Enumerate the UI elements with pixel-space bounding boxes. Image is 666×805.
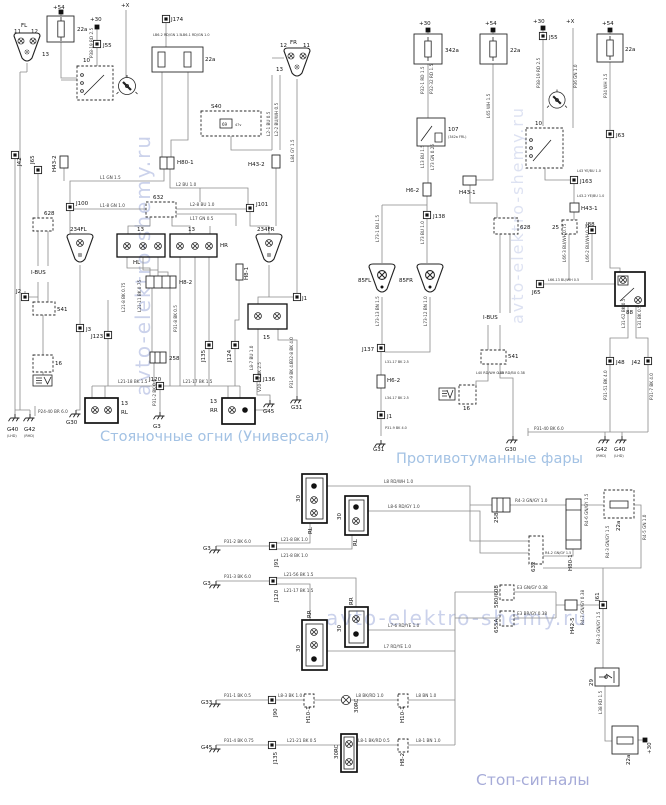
power-54-terminal: [491, 28, 496, 33]
connector-j138: [423, 211, 430, 218]
label: +X: [121, 3, 130, 9]
label: 13: [137, 227, 144, 233]
wire-label: L7-6 RD/YE 1.0: [388, 623, 420, 628]
label: J48: [615, 360, 625, 366]
fuse-22a-dashed: [604, 490, 634, 518]
label: H43-1: [459, 190, 476, 196]
label: G45: [263, 409, 275, 415]
label: 11: [303, 43, 310, 49]
wire-label: E3 GN/GY 0.38: [517, 585, 548, 590]
label: G45: [201, 745, 213, 751]
label: +30: [533, 19, 545, 25]
connector-j91: [269, 542, 276, 549]
label: 22a: [625, 47, 635, 53]
power-30-terminal: [541, 26, 546, 31]
wire-label: L17 GN 0.5: [190, 216, 214, 221]
wire-label: P31-3 BK 6.0: [224, 574, 251, 579]
wire-label: L7 RD/YE 1.0: [384, 644, 411, 649]
power-30-terminal: [643, 738, 648, 743]
lamp-30rc-bulb: [341, 695, 350, 704]
label: 107: [448, 127, 459, 133]
lamp-85fr: [417, 264, 443, 292]
connector-j120: [156, 382, 163, 389]
lamp-fr: [284, 48, 310, 76]
label: 85FR: [399, 278, 413, 284]
label: J136: [262, 377, 276, 383]
wire-label: P38-19 RD 2.5: [89, 28, 94, 58]
label: J138: [432, 214, 446, 220]
fuse-342a: [414, 34, 442, 64]
label: RL: [353, 538, 359, 546]
label: H42-5: [570, 617, 576, 634]
ground-g45: [264, 400, 275, 407]
label: J1: [301, 296, 307, 302]
label: +54: [485, 21, 497, 27]
label: RR: [349, 597, 355, 605]
unit-s40: [201, 111, 261, 136]
wire-label: P31-4 BK 0.75: [224, 738, 254, 743]
label: G31: [291, 405, 302, 411]
wire-label: L21-21 BK 0.5: [287, 738, 317, 743]
section-title-parking: Стояночные огни (Универсал): [100, 429, 329, 445]
ground-g42: [599, 436, 610, 443]
label: J163: [579, 179, 593, 185]
label: H6-2: [387, 378, 400, 384]
wire-label: L2 BU 1.0: [176, 182, 197, 187]
wire-label: R4-2 GN/GY 1.5: [545, 551, 571, 555]
connector-h80-1: [160, 157, 174, 169]
unit-15: [248, 304, 287, 329]
label: 13: [210, 399, 217, 405]
label: 541: [508, 354, 519, 360]
wire-label: P32-1 RD 1.5: [420, 66, 425, 94]
connector-j42: [644, 357, 651, 364]
wire-label: L21-8 BK 1.0: [281, 553, 308, 558]
unit-13-rr: [222, 398, 255, 424]
label: 16: [463, 406, 470, 412]
label: I-BUS: [483, 315, 498, 321]
wire-label: L2-1 BU 0.5: [266, 111, 271, 136]
label: 13: [42, 52, 49, 58]
label: G42: [596, 447, 607, 453]
battery-gauge-icon: [33, 375, 52, 386]
connector-j174: [162, 15, 169, 22]
connector-j90: [268, 696, 275, 703]
unit-13-hr: [170, 234, 217, 257]
wire-label: L1-8 GN 1.0: [100, 203, 125, 208]
connector-j63: [606, 130, 613, 137]
lamp-234fr: [256, 234, 282, 262]
connector-h10-1-b: [398, 694, 408, 707]
wire-label: L2-2 BU/WH 0.5: [274, 103, 279, 136]
connector-j101: [246, 204, 253, 211]
label: J65: [30, 155, 36, 165]
wire-label: P38-19 RD 2.5: [536, 58, 541, 88]
label: FR: [290, 40, 297, 46]
label: J3: [85, 327, 92, 333]
label: 88: [626, 310, 633, 316]
wire-label: LB6-2 RD/GN 1.5: [153, 33, 182, 37]
wire-label: P31-9 BK 4.0: [385, 426, 407, 430]
connector-j120: [269, 577, 276, 584]
connector-h80-1: [566, 499, 581, 549]
unit-258: [492, 498, 510, 512]
connector-h10-1: [304, 694, 314, 707]
wire-label: L40 RD/BU 0.38: [498, 371, 525, 375]
connector-j1: [293, 293, 300, 300]
relay-107: [417, 118, 445, 146]
label: 30: [296, 645, 302, 652]
connector-j65: [34, 166, 41, 173]
fog-switch-88: [615, 272, 645, 306]
label: (RHD): [596, 454, 607, 458]
watermark-text: avto-elektro-shemy.ru: [508, 106, 527, 324]
label: H8-1: [244, 267, 250, 280]
wire-label: L8 BN 1.0: [416, 693, 437, 698]
wire-label: L73 BU 1.0: [420, 221, 425, 244]
wire-label: P31-8 BK 0.5: [173, 305, 178, 332]
label: RL: [121, 410, 129, 416]
label: H43-2: [248, 162, 265, 168]
connector-j135: [205, 341, 212, 348]
ground-g3: [210, 581, 221, 588]
label: 13: [276, 67, 283, 73]
wire-label: P31-2 BK 6.0: [224, 539, 251, 544]
label: H43-2: [52, 155, 58, 172]
wire-label: L2-8 BU 1.0: [190, 202, 215, 207]
ignition-key-icon: [547, 90, 567, 109]
label: H8-2: [179, 280, 192, 286]
connector-j123: [104, 331, 111, 338]
wire-label: L66-3 BU/WH 0.75: [562, 223, 567, 262]
ignition-key-icon: [117, 75, 138, 95]
unit-541: [33, 302, 55, 315]
label: J63: [615, 133, 625, 139]
wire-label: L66-13 BU/WH 0.5: [548, 278, 579, 282]
label: J90: [273, 708, 279, 718]
label: J135: [201, 349, 207, 363]
section-fog-lights: +30 342a +54 22a 107 (342a FRL) H6-2 H43…: [358, 19, 654, 467]
label: J137: [361, 347, 375, 353]
label: 628: [44, 211, 55, 217]
label: RR: [210, 408, 218, 414]
wire-label: E3 BR/GY 0.38: [517, 611, 547, 616]
label: J1: [386, 414, 392, 420]
power-30-terminal: [95, 25, 100, 30]
label: 29: [589, 679, 595, 686]
watermark: avto-elektro-shemy.ru avto-elektro-shemy…: [131, 106, 588, 630]
wire-label: R4-3 GN/GY 1.0: [515, 498, 548, 503]
label: J101: [255, 202, 268, 208]
label: 30: [296, 495, 302, 502]
connector-h6-2: [423, 183, 431, 196]
lamp-fl: [14, 33, 40, 61]
connector-j3: [76, 324, 83, 331]
wire-label: R4-3 GN/GY 1.5: [605, 525, 610, 558]
ignition-switch-10: [77, 66, 113, 100]
unit-16: [459, 385, 476, 404]
label: J55: [548, 35, 558, 41]
connector-h43-1: [463, 176, 476, 185]
unit-30-rl-sedan: [345, 496, 368, 535]
wire-label: P24-40 BR 6.0: [38, 409, 68, 414]
label: 580/608: [494, 585, 500, 608]
label: H10-1: [400, 706, 406, 723]
wire-label: R4-3 GN/GY 1.5: [596, 611, 601, 644]
connector-h43-2: [272, 155, 280, 168]
wire-label: L31-62 BK 0.5: [621, 298, 626, 328]
unit-541: [481, 350, 506, 364]
wire-label: P31-51 BK 4.0: [603, 370, 608, 400]
label: +54: [602, 21, 614, 27]
label: 632: [531, 562, 537, 573]
connector-j55: [539, 32, 546, 39]
label: HL: [133, 260, 141, 266]
wire-label: R4-7 GN/GY 0.38: [580, 590, 585, 625]
label: 234FR: [257, 227, 275, 233]
label: 16: [55, 361, 62, 367]
wire-label: L43 YE/BU 1.0: [577, 169, 601, 173]
wire-label: L38 RD 1.5: [598, 691, 603, 714]
label: J91: [274, 558, 280, 568]
label: 13: [121, 401, 128, 407]
label: J100: [75, 201, 89, 207]
label: 30RC: [334, 744, 340, 759]
label: 13: [188, 227, 195, 233]
unit-30rc: [341, 734, 357, 772]
label: +30: [90, 17, 102, 23]
battery-gauge-icon: [439, 388, 455, 400]
connector-j55: [93, 40, 100, 47]
wire-label: L8-1 BN 1.0: [416, 738, 441, 743]
wire-label: L13 BU 1.5: [420, 145, 425, 168]
label: J174: [170, 17, 184, 23]
label: 15: [263, 335, 270, 341]
label: +30: [647, 742, 653, 754]
connector-j163: [570, 176, 577, 183]
label: 47v: [235, 123, 241, 127]
label: 30: [337, 625, 343, 632]
wire-label: L73-12 BN 1.0: [423, 296, 428, 326]
wire-label: L73-1 BU 1.5: [375, 215, 380, 242]
wire-label: L66-2 BU/WH 0.75: [585, 223, 590, 262]
fuse-22a-right: [597, 34, 623, 62]
label: G31: [373, 447, 384, 453]
label: G30: [66, 420, 78, 426]
switch-lamp-icon: [635, 297, 642, 304]
connector-j135: [268, 741, 275, 748]
wire-label: P36 GN 1.0: [573, 64, 578, 88]
label: J2: [15, 289, 21, 295]
label: G42: [24, 427, 35, 433]
wiring-diagram-page: avto-elektro-shemy.ru avto-elektro-shemy…: [0, 0, 666, 800]
ground-g40: [9, 414, 20, 421]
wire-label: L21-56 BK 1.5: [284, 572, 314, 577]
label: 22a: [205, 57, 215, 63]
wire-label: L43-2 YE/BU 1.0: [577, 194, 604, 198]
label: (LHD): [614, 454, 624, 458]
wire-label: L8 RD/WH 1.0: [384, 479, 413, 484]
connector-h8-2: [146, 276, 176, 288]
label: J42: [631, 360, 641, 366]
label: H10-1: [306, 706, 312, 723]
connector-h43-2-left: [60, 156, 68, 168]
wire-label: P31-40 BK 6.0: [534, 426, 564, 431]
label: J124: [227, 349, 233, 363]
label: FL: [21, 23, 28, 29]
ground-g42: [24, 414, 35, 421]
wire-label: L73-13 BN 1.5: [375, 296, 380, 326]
connector-j61: [599, 601, 606, 608]
label: J123: [90, 334, 104, 340]
label: 69: [222, 122, 228, 127]
wire-label: L21-17 BK 1.5: [284, 588, 314, 593]
section-brake-lights: 30 RL 30 RL RR 30 RR 30 G3 J91 G3 J120 2…: [201, 474, 653, 789]
label: 85FL: [358, 278, 372, 284]
label: S40: [211, 104, 222, 110]
wire-label: L31-17 BK 2.5: [385, 360, 409, 364]
label: 30: [337, 513, 343, 520]
label: H43-1: [581, 206, 598, 212]
ground-g30: [507, 436, 518, 443]
wire-label: L8-1 BK/RD 0.5: [358, 738, 390, 743]
label: +54: [53, 5, 65, 11]
wire-label: P32-8 BK 4.0: [289, 337, 294, 364]
wire-label: P31-2 BK 0.5: [152, 379, 157, 406]
connector-j100: [66, 203, 73, 210]
label: 22a: [510, 48, 520, 54]
wire-label: P32-32 RD 1.5: [429, 64, 434, 94]
unit-580-608: [500, 585, 514, 600]
wire-label: L21-8 BK 0.75: [121, 282, 126, 312]
label: 22a: [626, 755, 632, 765]
fuse-22a: [480, 34, 507, 64]
wire-label: L21-11 BK 0.75: [137, 280, 142, 312]
connector-j137: [377, 344, 384, 351]
label: J61: [595, 592, 601, 602]
connector-h42-5: [565, 600, 577, 610]
fuse-22a: [47, 16, 74, 42]
wire-label: L21-8 BK 1.0: [281, 537, 308, 542]
label: RL: [308, 526, 314, 534]
connector-j2: [21, 293, 28, 300]
wire-label: L8 BK/RD 1.0: [356, 693, 384, 698]
unit-13-rl: [85, 398, 118, 423]
label: G3: [203, 581, 211, 587]
label: J65: [531, 290, 541, 296]
label: 22a: [616, 521, 622, 531]
label: 258: [169, 356, 180, 362]
label: 10: [535, 121, 542, 127]
label: 628: [520, 225, 531, 231]
label: 258: [494, 512, 500, 523]
label: 234FL: [70, 227, 88, 233]
label: G40: [7, 427, 19, 433]
wire-label: L31 BK 0.5: [637, 305, 642, 328]
fuse-box-22a: [152, 47, 203, 72]
wire-label: L65 WH 1.5: [486, 93, 491, 118]
wire-label: R4-6 GN/GY 1.5: [584, 493, 589, 526]
unit-30-rr-wagon: [302, 620, 327, 670]
label: 22a: [77, 27, 87, 33]
wire-label: V20-19 BK 2.5: [257, 362, 262, 392]
label: 30RC: [354, 698, 360, 713]
wire-label: L34-17 BK 2.5: [385, 396, 409, 400]
wire-label: L8-7 BU 1.0: [249, 345, 254, 370]
label: (LHD): [7, 434, 17, 438]
unit-632: [529, 536, 543, 564]
wire-label: P31-7 BK 4.0: [649, 373, 654, 400]
label: RR: [307, 610, 313, 618]
section-title-brake: Стоп-сигналы: [476, 771, 590, 789]
label: H8-2: [400, 753, 406, 766]
wire-label: P31-1 BK 0.5: [224, 693, 251, 698]
label: G3: [203, 546, 211, 552]
wire-label: L8-3 BK 1.0: [278, 693, 302, 698]
label: I-BUS: [31, 270, 46, 276]
lamp-234fl: [67, 234, 93, 262]
ground-g40: [616, 436, 627, 443]
lamp-85fl: [369, 264, 395, 292]
label: 25: [552, 225, 559, 231]
label: (RHD): [24, 434, 35, 438]
label: G40: [614, 447, 626, 453]
connector-j48: [606, 357, 613, 364]
fuse-22a-bottom: [612, 726, 638, 754]
ground-g30: [70, 410, 81, 417]
label: 655A: [494, 619, 500, 633]
wire-label: R4-5 GN 1.0: [642, 514, 647, 540]
wire-label: L21-17 BK 1.5: [183, 379, 213, 384]
section-parking-lights: +54 22a +30 J55 +X 10 J174 22a LB6-2 RD/…: [7, 3, 329, 445]
unit-16: [33, 355, 53, 372]
wire-label: P34 WH 1.5: [603, 73, 608, 98]
label: J55: [102, 43, 112, 49]
label: J120: [274, 589, 280, 603]
section-title-fog: Противотуманные фары: [396, 451, 583, 467]
label: +X: [566, 19, 575, 25]
label: 541: [57, 307, 68, 313]
label: 11: [14, 29, 21, 35]
wiring-diagram: avto-elektro-shemy.ru avto-elektro-shemy…: [0, 0, 666, 800]
power-30-terminal: [426, 28, 431, 33]
connector-j124: [231, 341, 238, 348]
ground-g3: [154, 412, 165, 419]
label: H80-1: [177, 160, 194, 166]
label: HR: [220, 243, 228, 249]
ignition-switch-10: [526, 128, 563, 168]
ground-g3: [210, 546, 221, 553]
label: J42: [17, 157, 23, 167]
label: H80-1: [568, 554, 574, 571]
wire-label: L8-6 RD/GY 1.0: [388, 504, 420, 509]
label: J135: [273, 751, 279, 765]
unit-628: [33, 218, 53, 231]
wire-label: L73 GN 0.25: [430, 144, 435, 170]
connector-h8-1: [236, 264, 243, 280]
connector-j1: [377, 411, 384, 418]
connector-j65: [536, 280, 543, 287]
wire-label: LB6-1 RD/GN 1.0: [181, 33, 210, 37]
ground-g31: [291, 396, 302, 403]
connector-h8-2: [398, 739, 408, 752]
label: +30: [419, 21, 431, 27]
parking-wires: [15, 10, 297, 416]
label: (342a FRL): [448, 135, 467, 139]
label: 12: [31, 29, 38, 35]
label: 12: [280, 43, 287, 49]
wire-label: L21-18 BK 1.5: [118, 379, 148, 384]
